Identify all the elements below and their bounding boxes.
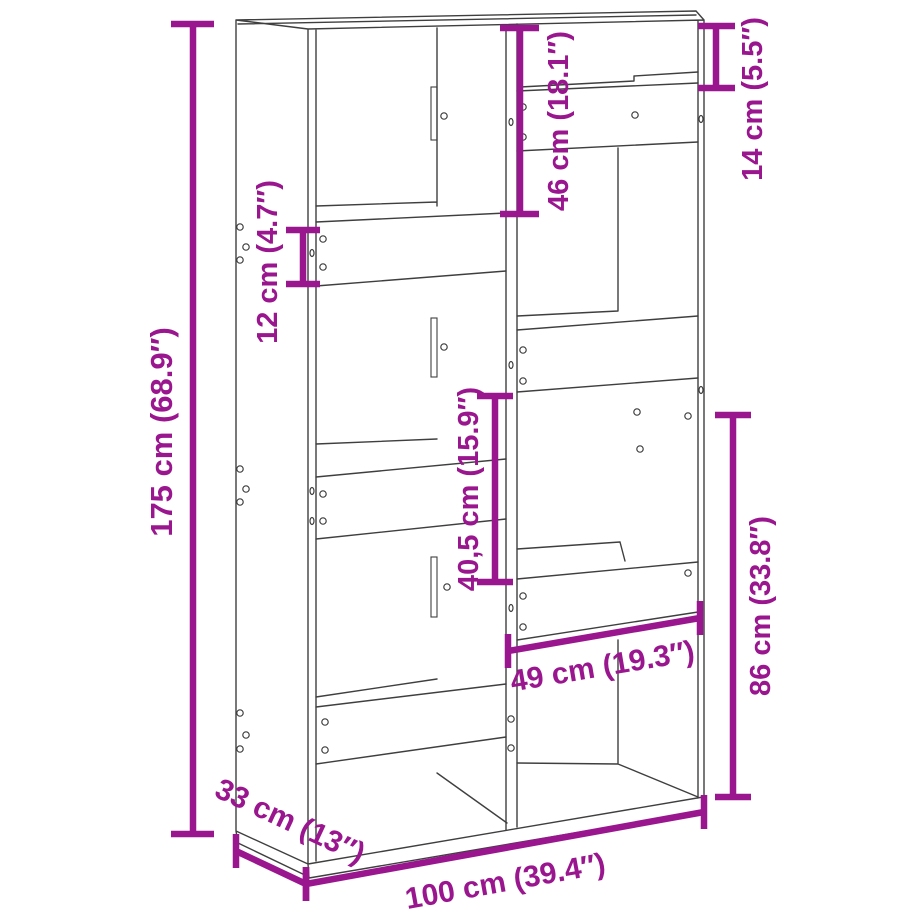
dimension-top-right-opening: 14 cm (5.5″) [698,17,769,181]
edge-pin-hole [310,518,314,525]
pin-hole [685,570,691,576]
pin-hole [520,624,526,630]
pin-hole [444,584,450,590]
edge-pin-hole [699,387,703,394]
groove-strip [431,557,437,617]
pin-hole [243,732,249,738]
furniture-dimension-diagram: 175 cm (68.9″) 12 cm (4.7″) 46 cm (18.1″… [0,0,920,920]
edge-pin-hole [509,119,513,126]
dimension-middle-right-compartment-label: 40,5 cm (15.9″) [453,387,485,591]
pin-hole [237,710,243,716]
pin-hole [320,518,326,524]
pin-hole [237,466,243,472]
pin-hole [243,486,249,492]
pin-hole [322,719,328,725]
pin-hole [237,224,243,230]
pin-hole [520,347,526,353]
pin-hole [320,236,326,242]
edge-pin-hole [509,605,513,612]
pin-hole [320,264,326,270]
dimension-top-left-compartment-label: 46 cm (18.1″) [543,31,575,211]
dimension-depth-line [236,834,306,901]
pin-hole [508,716,514,722]
dimension-lower-right-section: 86 cm (33.8″) [715,415,777,797]
dimension-width: 100 cm (39.4″) [306,795,704,916]
pin-hole [441,344,447,350]
dimension-height-label: 175 cm (68.9″) [144,327,179,537]
pin-hole [685,413,691,419]
edge-pin-hole [310,488,314,495]
dimension-middle-right-compartment: 40,5 cm (15.9″) [453,387,513,591]
dimension-shelf-band: 12 cm (4.7″) [252,180,320,344]
dimension-shelf-band-label: 12 cm (4.7″) [252,180,284,344]
pin-hole [520,378,526,384]
groove-strip [431,318,437,377]
edge-pin-hole [310,250,314,257]
pin-hole [634,409,640,415]
dimension-depth: 33 cm (13″) [210,772,370,901]
dimension-height: 175 cm (68.9″) [144,24,214,834]
pin-hole [322,747,328,753]
pin-hole [237,257,243,263]
pin-hole [632,112,638,118]
center-divider [506,24,517,830]
pin-hole [320,491,326,497]
pin-hole [637,446,643,452]
pin-hole [237,499,243,505]
dimension-top-right-opening-label: 14 cm (5.5″) [737,17,769,181]
edge-pin-hole [699,116,703,123]
pin-hole [508,745,514,751]
dimension-lower-right-section-label: 86 cm (33.8″) [745,516,777,696]
dimension-shelf-band-line [286,230,320,284]
pin-hole [237,746,243,752]
diagram-canvas: 175 cm (68.9″) 12 cm (4.7″) 46 cm (18.1″… [0,0,920,920]
groove-strip [431,87,437,140]
edge-pin-hole [509,362,513,369]
pin-hole [520,593,526,599]
pin-hole [243,244,249,250]
pin-hole [441,113,447,119]
